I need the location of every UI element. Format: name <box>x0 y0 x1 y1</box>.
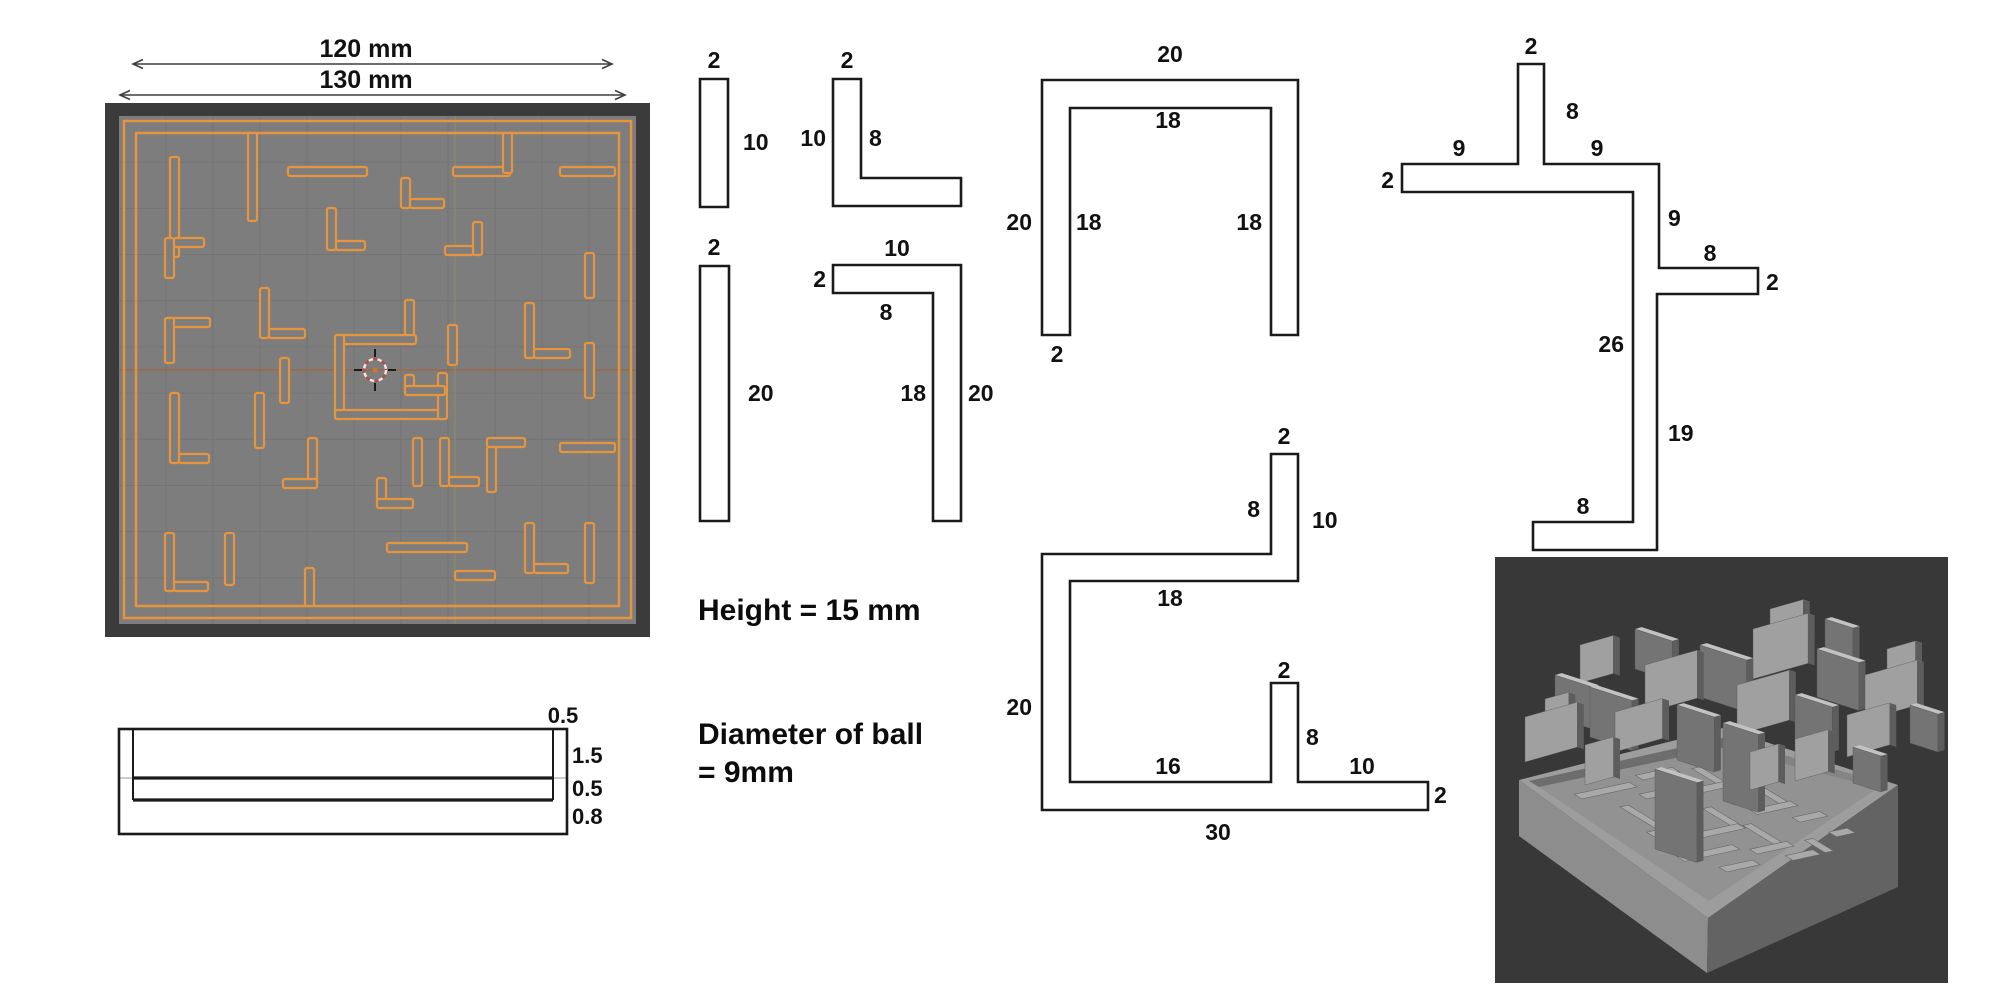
dimension-label: 30 <box>1205 819 1231 845</box>
maze-wall <box>283 479 317 488</box>
maze-wall <box>165 533 174 591</box>
maze-wall <box>410 199 444 208</box>
maze-wall <box>455 571 495 580</box>
maze-wall <box>525 523 534 573</box>
maze-wall <box>534 564 568 573</box>
maze-wall <box>448 325 457 365</box>
floating-wall-side <box>1890 703 1897 747</box>
dimension-arrows: 120 mm130 mm <box>120 35 625 100</box>
maze-wall <box>269 329 305 338</box>
floating-wall-side <box>1917 660 1924 707</box>
maze-wall <box>585 523 594 583</box>
floating-wall-front <box>1585 737 1614 785</box>
dimension-label: 18 <box>1155 107 1181 133</box>
dimension-label: 8 <box>1306 724 1319 750</box>
maze-wall <box>288 167 367 176</box>
drawing-canvas: 120 mm130 mm 210210822010281820201820181… <box>0 0 2000 985</box>
dimension-label: 8 <box>880 299 893 325</box>
maze-wall <box>560 443 615 452</box>
maze-top-view-viewport <box>105 103 650 637</box>
dimension-label: 8 <box>1566 98 1579 124</box>
maze-wall <box>174 238 204 247</box>
dimension-label: 26 <box>1598 331 1624 357</box>
cursor-dot <box>372 367 377 372</box>
dimension-label: 20 <box>1157 41 1183 67</box>
maze-wall <box>405 386 445 395</box>
dimension-label: 18 <box>1157 585 1183 611</box>
dimension-label: 18 <box>900 380 926 406</box>
maze-wall <box>487 438 525 447</box>
floating-wall-front <box>1677 705 1714 772</box>
dimension-label: 20 <box>1006 694 1032 720</box>
floating-wall-side <box>1613 636 1620 676</box>
floating-wall-side <box>1714 715 1721 772</box>
maze-wall <box>387 543 467 552</box>
maze-wall <box>327 208 336 250</box>
maze-wall <box>413 438 422 486</box>
dimension-label: 19 <box>1668 420 1694 446</box>
dimension-label: 2 <box>708 234 721 260</box>
maze-wall <box>560 167 615 176</box>
maze-wall <box>174 582 208 591</box>
dimension-label: 16 <box>1155 753 1181 779</box>
maze-wall <box>473 222 482 255</box>
part-outline-l-2x10x8 <box>833 79 961 206</box>
maze-wall <box>225 533 234 585</box>
maze-wall <box>165 238 174 278</box>
maze-wall <box>260 288 269 338</box>
maze-wall <box>165 318 174 363</box>
floating-wall-side <box>1779 744 1786 784</box>
floating-wall-side <box>1808 613 1815 665</box>
maze-wall <box>338 335 416 344</box>
dimension-text: 130 mm <box>319 66 412 94</box>
maze-wall <box>445 246 473 255</box>
section-dimension-label: 1.5 <box>572 743 603 768</box>
render-3d-panel <box>1495 557 1948 983</box>
floating-wall-side <box>1697 650 1704 700</box>
maze-wall <box>585 343 594 398</box>
maze-wall <box>453 167 510 176</box>
maze-wall <box>534 349 570 358</box>
ball-note-line2: = 9mm <box>698 754 923 792</box>
dimension-label: 10 <box>743 129 769 155</box>
section-outer-rect <box>119 729 567 834</box>
dimension-label: 2 <box>1434 782 1447 808</box>
section-dimension-label: 0.5 <box>572 776 603 801</box>
floating-wall-side <box>1881 754 1888 792</box>
floating-wall-side <box>1853 626 1860 662</box>
dimension-text: 120 mm <box>319 35 412 63</box>
floating-wall-front <box>1655 769 1697 863</box>
floating-wall-side <box>1938 712 1945 752</box>
maze-wall <box>449 477 479 486</box>
floating-wall-side <box>1614 737 1621 779</box>
maze-wall <box>525 303 534 358</box>
dimension-label: 18 <box>1076 209 1102 235</box>
dimension-label: 10 <box>800 125 826 151</box>
dimension-label: 8 <box>1577 493 1590 519</box>
maze-wall <box>336 241 365 250</box>
part-outline-bar-2x20 <box>700 266 729 521</box>
maze-design-drawing: 120 mm130 mm 210210822010281820201820181… <box>0 0 2000 985</box>
dimension-label: 9 <box>1453 135 1466 161</box>
maze-wall <box>248 133 257 221</box>
maze-wall <box>335 335 344 419</box>
ball-note-line1: Diameter of ball <box>698 716 923 754</box>
ball-note: Diameter of ball = 9mm <box>698 716 923 792</box>
height-note: Height = 15 mm <box>698 592 921 630</box>
dimension-label: 18 <box>1236 209 1262 235</box>
maze-wall <box>585 253 594 298</box>
dimension-label: 2 <box>1381 167 1394 193</box>
section-dimension-label: 0.8 <box>572 804 603 829</box>
dimension-label: 9 <box>1591 135 1604 161</box>
maze-wall <box>440 438 449 486</box>
part-outline-bar-2x10 <box>700 79 728 207</box>
dimension-label: 2 <box>1525 33 1538 59</box>
dimension-label: 2 <box>1278 657 1291 683</box>
dimension-label: 2 <box>1051 341 1064 367</box>
floating-wall-side <box>1697 781 1704 863</box>
maze-wall <box>377 499 413 508</box>
dimension-label: 2 <box>813 266 826 292</box>
maze-wall <box>255 393 264 448</box>
dimension-label: 8 <box>1704 240 1717 266</box>
maze-wall <box>179 454 209 463</box>
dimension-label: 9 <box>1668 205 1681 231</box>
section-dimension-label: 0.5 <box>548 703 579 728</box>
maze-wall <box>503 133 512 173</box>
floating-wall-side <box>1789 670 1796 722</box>
dimension-label: 2 <box>1278 423 1291 449</box>
dimension-label: 2 <box>1766 269 1779 295</box>
floating-wall-side <box>1828 730 1835 774</box>
dimension-label: 2 <box>708 47 721 73</box>
maze-wall <box>170 393 179 463</box>
maze-wall <box>401 178 410 208</box>
cross-section-drawing: 0.51.50.50.8 <box>119 703 603 834</box>
dimension-label: 8 <box>869 125 882 151</box>
floating-wall-side <box>1663 699 1670 741</box>
dimension-label: 20 <box>1006 209 1032 235</box>
dimension-label: 2 <box>841 47 854 73</box>
dimension-label: 8 <box>1247 496 1260 522</box>
maze-wall <box>305 568 314 606</box>
floating-wall-side <box>1859 661 1866 711</box>
maze-wall <box>280 358 289 403</box>
part-outline-gamma-2x10x20 <box>833 265 961 521</box>
dimension-label: 10 <box>884 235 910 261</box>
dimension-label: 20 <box>748 380 774 406</box>
floating-wall-front <box>1750 744 1779 790</box>
floating-wall-side <box>1577 702 1584 749</box>
dimension-label: 20 <box>968 380 994 406</box>
dimension-label: 10 <box>1349 753 1375 779</box>
dimension-label: 10 <box>1312 507 1338 533</box>
maze-wall <box>335 410 447 419</box>
maze-wall <box>487 447 496 492</box>
